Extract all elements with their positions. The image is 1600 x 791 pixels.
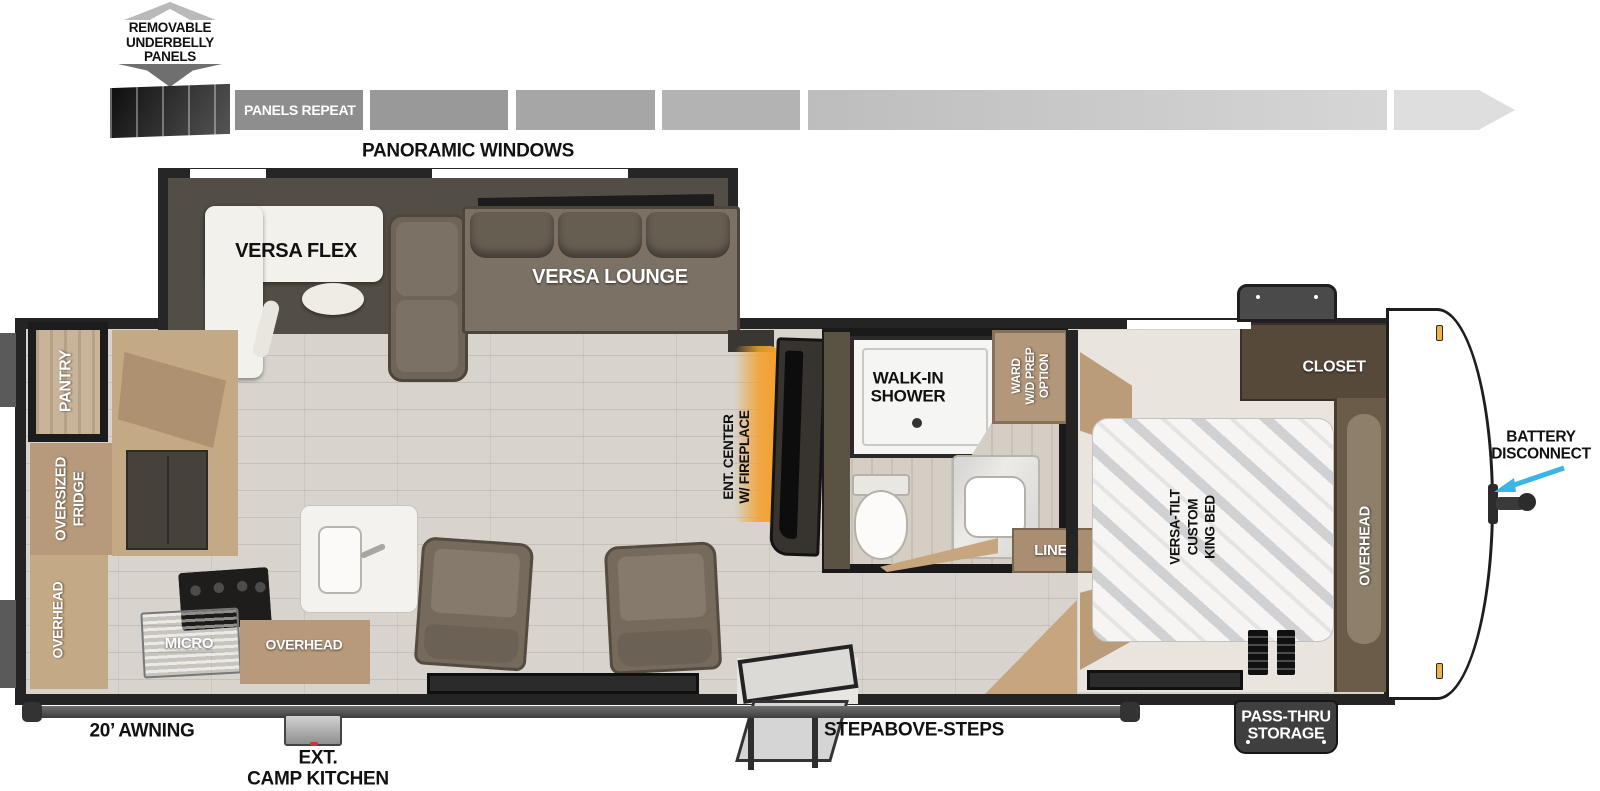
lounge-back-cushion [470,212,554,258]
ent-center-label: ENT. CENTER W/ FIREPLACE [721,410,753,503]
cabinet-door-seam [167,456,169,544]
pantry-label: PANTRY [58,350,77,412]
bedroom-window [1087,670,1243,690]
step-leg [812,714,818,768]
panels-arrow-icon [1394,90,1515,130]
overhead-rear-label: OVERHEAD [50,582,67,659]
marker-light [1436,663,1443,679]
micro-label: MICRO [165,636,214,652]
battery-disconnect-label: BATTERY DISCONNECT [1491,429,1590,462]
desk-chair [302,283,364,315]
bedroom-divider-wall [1066,330,1078,573]
overhead-bedroom-label: OVERHEAD [1357,506,1374,586]
slide-window [190,169,266,178]
bed-step [1248,630,1268,675]
marker-light [1436,325,1443,341]
awning-end-cap [22,702,42,722]
step-leg [748,716,754,770]
shower-drain [912,418,922,428]
panel-segment [370,90,508,130]
overhead-rear-cabinet [30,555,108,689]
screw-dot [1314,295,1318,299]
panel-segment-long [808,90,1387,130]
pass-thru-label: PASS-THRU STORAGE [1241,709,1330,744]
underbelly-arrow-down-icon [118,64,222,87]
lounge-back-cushion [558,212,642,258]
panoramic-windows-label: PANORAMIC WINDOWS [362,142,574,163]
closet-label: CLOSET [1302,358,1365,375]
bedroom-top-window [1127,320,1251,329]
recliner-left [414,536,535,672]
storage-flap-top [1237,284,1337,322]
walk-in-shower-label: WALK-IN SHOWER [871,370,946,407]
front-cap [1386,308,1494,700]
living-window [427,673,699,694]
lounge-chaise-cushion [396,222,458,296]
ward-label: WARD W/D PREP OPTION [1009,348,1051,405]
recliner-right [604,541,723,675]
panels-repeat-label: PANELS REPEAT [235,103,355,118]
panel-segment [662,90,800,130]
awning-bar [28,706,1138,718]
overhead-kitchen-label: OVERHEAD [266,637,343,652]
battery-disconnect-arrow-icon [1494,462,1570,496]
bed-step [1277,630,1295,675]
oversized-fridge-label: OVERSIZED FRIDGE [52,457,87,541]
rear-bumper [0,333,16,407]
awning-end-cap [1120,702,1140,722]
toilet [854,490,908,560]
steps-label: STEPABOVE-STEPS [824,721,1004,742]
sink-basin [318,526,362,594]
underbelly-arrow-up-icon [124,2,216,20]
underbelly-panels-graphic [110,84,230,138]
screw-dot [1256,295,1260,299]
floorplan-canvas: REMOVABLE UNDERBELLY PANELS PANELS REPEA… [0,0,1600,791]
versa-lounge-label: VERSA LOUNGE [532,267,688,289]
camp-kitchen-label: EXT. CAMP KITCHEN [247,748,389,789]
slide-window [432,169,628,178]
camp-kitchen-knob [310,742,318,746]
panel-segment [516,90,655,130]
underbelly-label: REMOVABLE UNDERBELLY PANELS [126,21,214,65]
king-bed-label: VERSA-TILT CUSTOM KING BED [1167,489,1220,565]
awning-label: 20’ AWNING [89,722,194,743]
bathroom-west-wall [824,332,850,569]
versa-flex-label: VERSA FLEX [235,241,357,263]
lounge-back-cushion [646,212,730,258]
lounge-chaise-cushion [396,300,458,372]
tv-screen [779,351,804,540]
rear-bumper [0,600,16,688]
panel-segment-repeat: PANELS REPEAT [235,90,363,130]
ent-center-cabinet [769,337,827,557]
camp-kitchen-box [284,714,342,746]
cabinet-doors [126,450,208,550]
